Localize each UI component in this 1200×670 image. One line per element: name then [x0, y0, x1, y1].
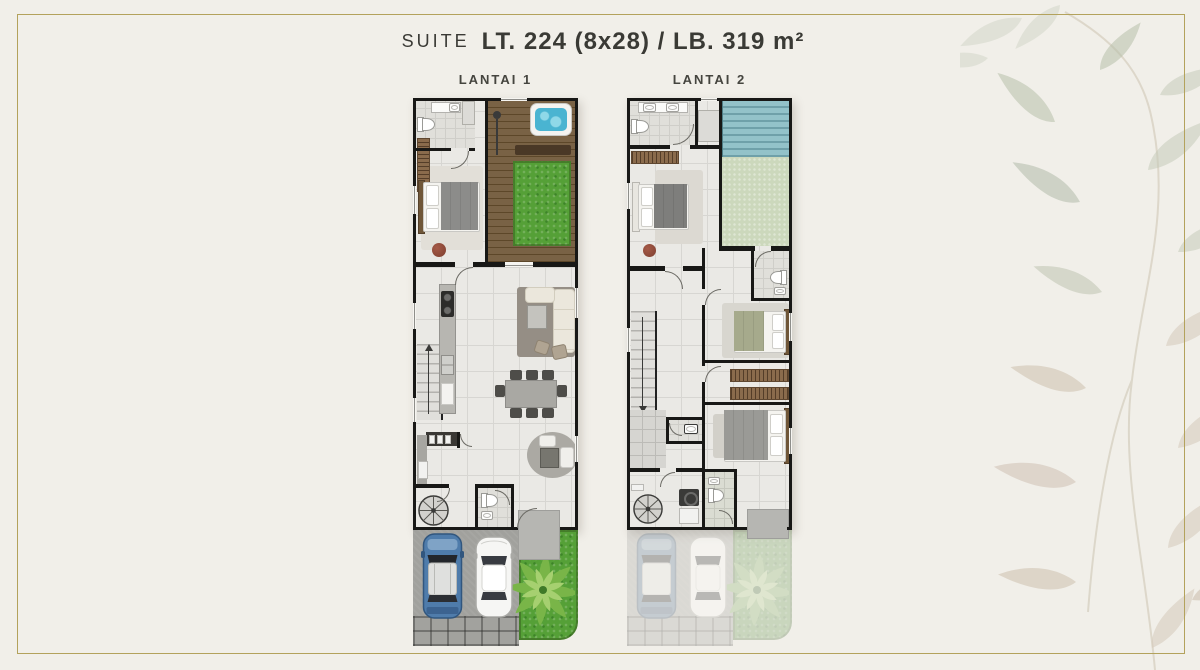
sink-icon	[708, 477, 720, 485]
window	[413, 303, 416, 329]
window	[575, 288, 578, 318]
sink-icon	[643, 103, 656, 112]
shelf-icon	[631, 484, 644, 491]
interior-wall	[690, 145, 720, 149]
sink-icon	[684, 424, 698, 434]
interior-wall	[751, 251, 754, 301]
sink-icon	[774, 287, 786, 295]
closet-rack	[730, 369, 789, 382]
interior-wall	[469, 148, 475, 151]
car-blue-icon	[420, 533, 465, 619]
interior-wall	[475, 484, 478, 530]
window	[413, 186, 416, 214]
interior-wall	[533, 262, 575, 267]
interior-wall	[734, 469, 737, 528]
chair-icon	[542, 370, 554, 380]
house-outline-floor1	[413, 98, 578, 530]
toilet-icon	[631, 119, 648, 132]
shower-pole	[496, 119, 498, 155]
window	[701, 98, 717, 101]
interior-wall	[630, 145, 670, 149]
house-outline-floor2	[627, 98, 792, 530]
outer-wall	[627, 98, 630, 530]
car-white-icon	[686, 536, 730, 618]
jacuzzi-water	[535, 108, 567, 131]
bed-icon	[732, 309, 789, 353]
appliance-icon	[429, 435, 435, 444]
dining-table-icon	[505, 380, 557, 408]
window	[789, 428, 792, 454]
interior-wall	[473, 262, 485, 267]
interior-wall	[478, 484, 511, 488]
closet-rack	[730, 387, 789, 400]
counter-board	[441, 383, 454, 405]
chair-icon	[510, 408, 522, 418]
stair-arrow-line	[428, 350, 429, 414]
cooktop-icon	[441, 291, 454, 317]
side-table-icon	[540, 448, 559, 468]
appliance-icon	[445, 435, 451, 444]
interior-wall	[511, 484, 514, 530]
interior-wall	[705, 402, 792, 405]
interior-wall	[666, 417, 705, 420]
interior-wall	[676, 468, 702, 472]
chair-icon	[526, 370, 538, 380]
interior-wall	[702, 248, 705, 289]
spec-label: LT. 224 (8x28) / LB. 319 m²	[482, 28, 805, 55]
window	[413, 398, 416, 422]
chair-icon	[557, 385, 567, 397]
window	[627, 328, 630, 352]
paver-tiles	[413, 616, 519, 646]
interior-wall	[630, 468, 660, 472]
car-white-icon	[472, 536, 516, 618]
interior-wall	[485, 262, 505, 267]
window	[627, 183, 630, 209]
laundry-counter	[679, 508, 699, 524]
interior-wall	[630, 266, 665, 271]
interior-wall	[702, 305, 705, 366]
page-title: SUITELT. 224 (8x28) / LB. 319 m²	[353, 28, 853, 56]
skylight-roof	[722, 101, 789, 157]
washing-machine-icon	[679, 489, 699, 506]
paver-tiles	[627, 616, 733, 646]
bed-icon	[722, 408, 789, 462]
floor-label-lantai-2: LANTAI 2	[627, 72, 792, 87]
pouf-icon	[643, 244, 656, 257]
bed-icon	[418, 180, 480, 232]
interior-wall	[416, 262, 455, 267]
series-label: SUITE	[402, 31, 470, 51]
staircase-icon	[631, 311, 655, 421]
interior-wall	[485, 101, 488, 264]
garden-plant-icon	[725, 542, 789, 632]
toilet-icon	[417, 117, 434, 130]
botanical-leaves-decor	[960, 0, 1200, 670]
pouf-icon	[432, 243, 446, 257]
balcony-pad	[747, 509, 789, 539]
wardrobe-icon	[631, 151, 679, 164]
staircase-icon	[417, 344, 441, 420]
sink-icon	[481, 511, 493, 520]
sofa-chaise	[525, 287, 555, 303]
interior-wall	[416, 148, 451, 151]
interior-wall	[705, 469, 734, 472]
shower-stall	[698, 110, 720, 142]
sliding-door	[505, 262, 533, 267]
toilet-icon	[771, 270, 787, 283]
interior-wall	[695, 101, 698, 145]
kitchen-sink-icon	[441, 355, 454, 375]
interior-wall	[719, 246, 755, 251]
fridge-icon	[418, 461, 428, 479]
stair-arrow-up	[425, 344, 433, 351]
spiral-stair-icon	[418, 495, 449, 526]
terrace-tiles	[630, 410, 666, 468]
appliance-icon	[437, 435, 443, 444]
carport-area-faded	[627, 530, 792, 646]
floor-plan-lantai-2	[627, 98, 792, 646]
bed-icon	[632, 182, 689, 230]
window	[501, 98, 527, 101]
window	[789, 313, 792, 341]
toilet-icon	[708, 488, 723, 501]
outer-wall	[627, 527, 747, 530]
outer-wall	[787, 527, 792, 530]
chair-icon	[526, 408, 538, 418]
outdoor-shower-icon	[493, 111, 501, 119]
coffee-table-icon	[527, 305, 547, 329]
spiral-stair-icon	[633, 494, 663, 524]
interior-wall	[719, 101, 722, 251]
chair-icon	[495, 385, 505, 397]
sink-icon	[449, 103, 460, 112]
floor-plan-lantai-1	[413, 98, 578, 646]
garden-turf	[513, 161, 571, 246]
interior-wall	[666, 417, 669, 444]
interior-wall	[705, 360, 792, 363]
jacuzzi-icon	[530, 103, 572, 136]
interior-wall	[666, 441, 705, 444]
interior-wall	[751, 298, 789, 301]
stair-rail	[655, 311, 657, 421]
window	[575, 436, 578, 462]
lounge-chair-icon	[539, 435, 556, 447]
chair-icon	[510, 370, 522, 380]
shower-stall	[462, 101, 475, 125]
lounge-chair-icon	[560, 447, 574, 468]
car-blue-icon	[634, 533, 679, 619]
outer-wall	[560, 527, 578, 530]
stair-arrow-line	[642, 317, 643, 411]
floor-label-lantai-1: LANTAI 1	[413, 72, 578, 87]
garden-void	[722, 157, 789, 246]
counter-corner	[417, 435, 427, 452]
chair-icon	[542, 408, 554, 418]
bench-icon	[515, 145, 571, 155]
sink-icon	[666, 103, 679, 112]
floorplan-brochure-page: SUITELT. 224 (8x28) / LB. 319 m² LANTAI …	[0, 0, 1200, 670]
outer-wall	[413, 98, 578, 101]
outer-wall	[413, 527, 518, 530]
